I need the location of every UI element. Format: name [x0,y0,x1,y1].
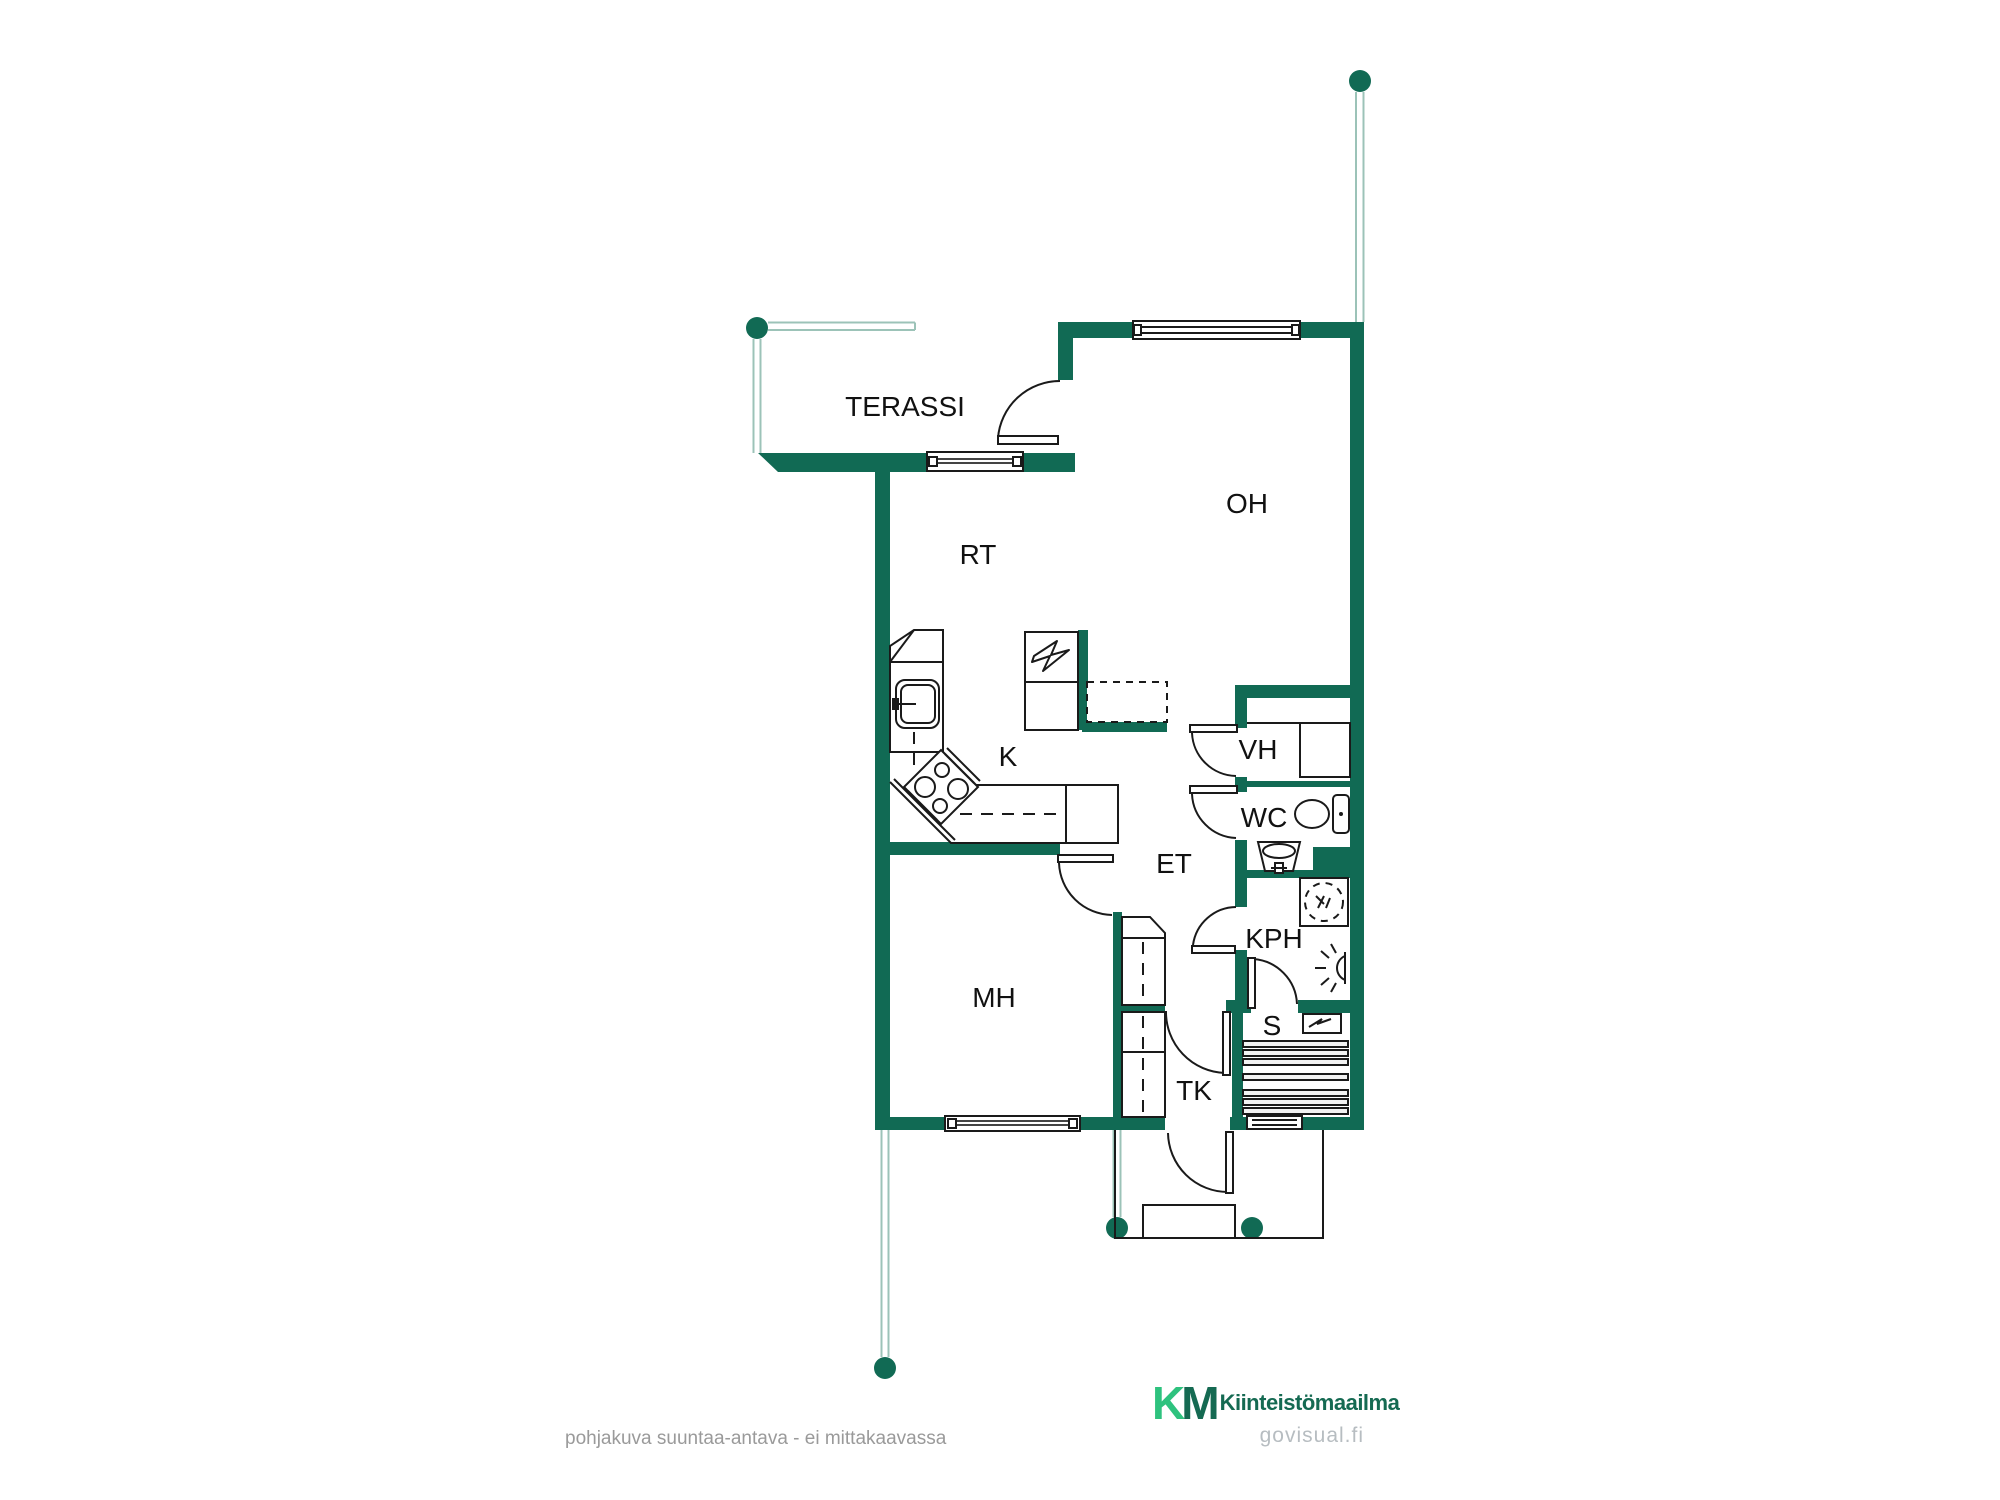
survey-dot-porch-left [1106,1217,1128,1239]
disclaimer-text: pohjakuva suuntaa-antava - ei mittakaava… [565,1428,946,1450]
porch-step [1143,1205,1235,1238]
wall-closet-divider [1122,1005,1165,1012]
sauna-door [1248,958,1297,1008]
km-logo-icon: KM [1152,1380,1216,1426]
tk-door [1166,1011,1230,1075]
wall-k-partition-v [1078,630,1088,730]
stove-icon [904,750,978,824]
label-mh: MH [972,982,1016,1013]
tall-cabinet [890,630,943,662]
front-door-opening [1165,1116,1230,1131]
kitchen-sink-icon [892,680,939,728]
sauna-fixtures [1243,1014,1348,1114]
kph-fixtures [1300,878,1348,992]
floorplan-page: TERASSI OH RT K VH WC ET KPH MH S TK poh… [0,0,2000,1500]
guide-terassi-top [768,323,915,331]
km-logo-k: K [1152,1377,1181,1429]
wall-k-partition-h [1082,722,1167,732]
label-s: S [1263,1010,1282,1041]
wall-wc-left-lower [1235,840,1247,872]
survey-dot-top-right [1349,70,1371,92]
wall-kph-s-right [1298,1000,1363,1013]
mh-door [1058,855,1113,915]
vh-wardrobe [1300,723,1350,777]
label-oh: OH [1226,488,1268,519]
wall-kph-left-upper [1235,878,1247,907]
electrical-cabinet-icon [1025,632,1078,730]
guide-top-right [1356,92,1364,322]
label-terassi: TERASSI [845,391,965,422]
label-kph: KPH [1245,923,1303,954]
vh-door [1190,725,1237,776]
wall-s-left [1232,1013,1243,1117]
front-door [1168,1132,1233,1193]
survey-dot-porch-right [1241,1217,1263,1239]
wall-vh-wc-divider [1242,781,1350,787]
wall-kph-left-lower [1235,950,1247,1005]
guide-bottom-left [882,1130,889,1357]
terassi-slider-window [927,452,1023,471]
label-rt: RT [960,539,997,570]
entrance-porch [1115,1130,1323,1238]
mh-slider-window [945,1116,1080,1131]
floorplan-drawing: TERASSI OH RT K VH WC ET KPH MH S TK [0,0,2000,1500]
wall-oh-bottom [1235,685,1363,698]
label-k: K [999,741,1018,772]
toilet-icon [1295,795,1349,833]
oh-window [1133,321,1300,339]
brand-name: Kiinteistömaailma [1220,1390,1400,1416]
sauna-benches [1243,1041,1348,1114]
brand-logo: KM Kiinteistömaailma [1152,1380,1399,1426]
kitchen-fixtures [890,630,1167,843]
wall-left [875,455,890,1130]
wall-mh-tk [1113,912,1122,1117]
wc-door [1190,786,1237,838]
sauna-window [1247,1116,1302,1129]
wall-wc-corner-block [1313,847,1363,878]
label-wc: WC [1241,802,1288,833]
wall-terassi-bottom [758,453,1075,472]
kph-door [1192,907,1236,953]
survey-dot-terassi [746,317,768,339]
washing-machine-icon [1300,878,1348,926]
terassi-door [998,381,1060,444]
label-tk: TK [1176,1075,1212,1106]
label-et: ET [1156,848,1192,879]
label-vh: VH [1239,734,1278,765]
washbasin-icon [1258,842,1300,873]
km-logo-m: M [1181,1377,1215,1429]
guide-terassi-left [754,339,761,453]
tk-closets [1122,917,1165,1117]
sauna-light-icon [1315,944,1345,992]
sauna-stove-icon [1303,1014,1341,1033]
appliance-space-dashed [1087,682,1167,722]
wall-vh-left-upper [1235,698,1247,728]
survey-dot-bottom-left [874,1357,896,1379]
watermark-text: govisual.fi [1168,1424,1364,1448]
